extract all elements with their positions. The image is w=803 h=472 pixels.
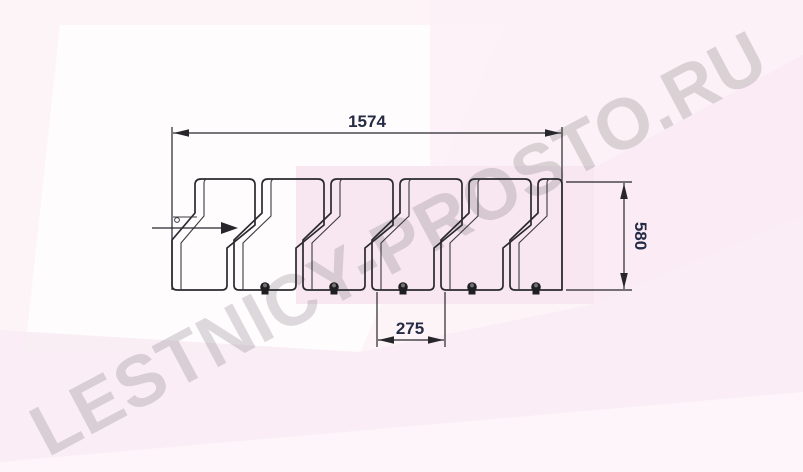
bolt-dome: [470, 283, 474, 287]
technical-drawing-canvas: LESTNICY-PROSTO.RU: [0, 0, 803, 472]
drawing-svg: LESTNICY-PROSTO.RU: [0, 0, 803, 472]
bolt-icon: [467, 282, 477, 294]
bolt-dome: [332, 283, 336, 287]
bolt-dome: [534, 283, 538, 287]
bolt-icon: [260, 282, 270, 294]
bolt-dome: [263, 283, 267, 287]
dimension-value-overall-height: 580: [631, 222, 650, 250]
bolt-icon: [398, 282, 408, 294]
bolt-icon: [531, 282, 541, 294]
dimension-value-overall-width: 1574: [348, 112, 386, 131]
bolt-dome: [401, 283, 405, 287]
bolt-icon: [329, 282, 339, 294]
dimension-value-module-pitch: 275: [396, 319, 424, 338]
